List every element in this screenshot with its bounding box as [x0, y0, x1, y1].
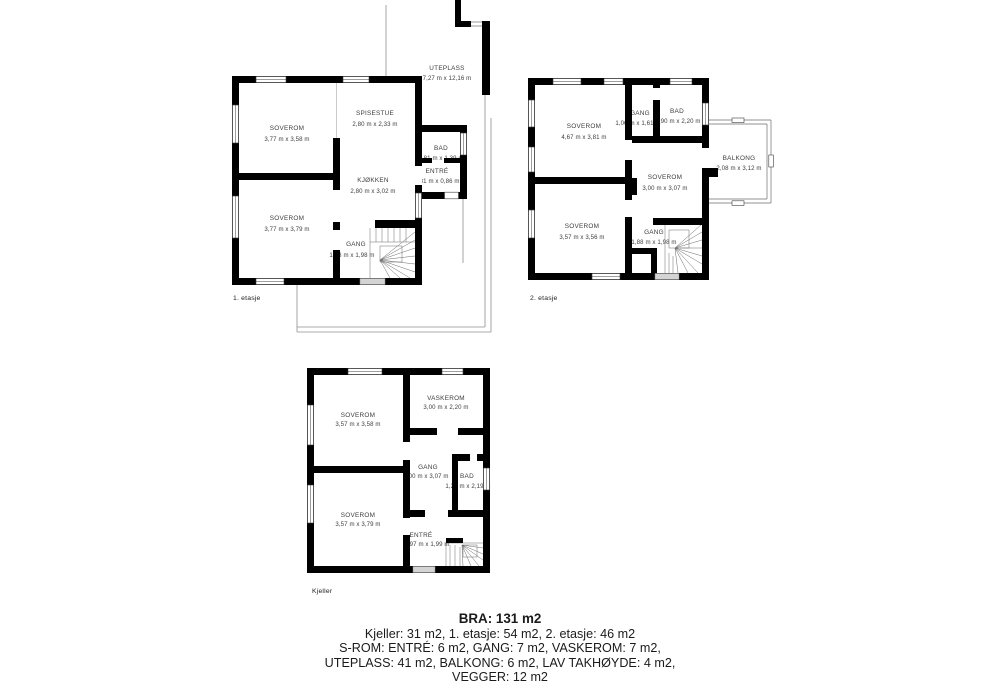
room-label: SOVEROM [648, 174, 682, 181]
room-label: KJØKKEN [357, 177, 389, 184]
summary-line-floors: Kjeller: 31 m2, 1. etasje: 54 m2, 2. eta… [0, 627, 1000, 642]
plan-first-floor: UTEPLASS 7,27 m x 12,16 m SOVEROM 3,77 m… [230, 0, 495, 335]
room-label: SOVEROM [341, 412, 375, 419]
floor-label: Kjeller [312, 588, 333, 595]
summary-line-srom: S-ROM: ENTRÉ: 6 m2, GANG: 7 m2, VASKEROM… [0, 641, 1000, 656]
room-dims: 1,97 m x 1,99 m [404, 541, 449, 548]
room-dims: 1,90 m x 2,20 m [655, 118, 700, 125]
room-dims: 3,77 m x 3,58 m [264, 136, 309, 143]
room-dims: 3,57 m x 3,79 m [335, 521, 380, 528]
bra-total: BRA: 131 m2 [0, 612, 1000, 627]
staircase [446, 543, 483, 566]
room-label: SOVEROM [341, 512, 375, 519]
room-label: GANG [418, 464, 438, 471]
room-dims: 2,80 m x 2,33 m [352, 121, 397, 128]
stair-exit-door [360, 279, 385, 285]
floorplan-page: UTEPLASS 7,27 m x 12,16 m SOVEROM 3,77 m… [0, 0, 1000, 700]
balcony-door-opening [702, 148, 709, 168]
room-label: BAD [434, 145, 448, 152]
room-dims: 3,00 m x 3,07 m [403, 473, 448, 480]
staircase [665, 222, 702, 273]
outdoor-dims: 7,27 m x 12,16 m [423, 75, 472, 82]
room-label: GANG [644, 229, 664, 236]
door-opening [415, 166, 422, 185]
summary-line-walls: VEGGER: 12 m2 [0, 670, 1000, 685]
room-label: VASKEROM [427, 395, 465, 402]
room-label: SPISESTUE [356, 110, 394, 117]
room-label: GANG [346, 241, 366, 248]
room-dims: 3,77 m x 3,79 m [264, 226, 309, 233]
staircase [370, 228, 415, 278]
floor-label: 1. etasje [233, 295, 261, 302]
stair-exit-door [655, 274, 679, 280]
entry-door [413, 567, 435, 573]
floor-label: 2. etasje [530, 295, 558, 302]
plan-basement: SOVEROM 3,57 m x 3,58 m VASKEROM 3,00 m … [300, 360, 500, 605]
area-summary: BRA: 131 m2 Kjeller: 31 m2, 1. etasje: 5… [0, 612, 1000, 685]
room-label: SOVEROM [567, 123, 601, 130]
room-label: SOVEROM [270, 125, 304, 132]
outdoor-label: UTEPLASS [429, 65, 464, 72]
room-dims: 3,00 m x 2,20 m [423, 404, 468, 411]
room-label: SOVEROM [270, 215, 304, 222]
room-label: SOVEROM [565, 223, 599, 230]
room-labels-first-floor: UTEPLASS 7,27 m x 12,16 m SOVEROM 3,77 m… [264, 65, 471, 259]
plan-second-floor: SOVEROM 4,67 m x 3,81 m GANG 1,00 m x 1,… [520, 70, 780, 305]
room-label: ENTRÉ [426, 166, 449, 175]
room-dims: 3,57 m x 3,56 m [559, 234, 604, 241]
room-label: ENTRÉ [410, 530, 433, 539]
door-opening [445, 192, 459, 199]
summary-line-outdoor: UTEPLASS: 41 m2, BALKONG: 6 m2, LAV TAKH… [0, 656, 1000, 671]
room-dims: 1,88 m x 1,98 m [631, 239, 676, 246]
room-dims: 3,57 m x 3,58 m [335, 421, 380, 428]
room-dims: 4,67 m x 3,81 m [561, 134, 606, 141]
room-label: BAD [670, 108, 684, 115]
room-dims: 2,80 m x 3,02 m [350, 188, 395, 195]
room-dims: 3,00 m x 3,07 m [642, 185, 687, 192]
room-label: GANG [630, 110, 650, 117]
room-label: BAD [460, 473, 474, 480]
walls-second-floor [528, 78, 718, 280]
outdoor-dims: 2,08 m x 3,12 m [716, 165, 761, 172]
outdoor-label: BALKONG [723, 155, 756, 162]
